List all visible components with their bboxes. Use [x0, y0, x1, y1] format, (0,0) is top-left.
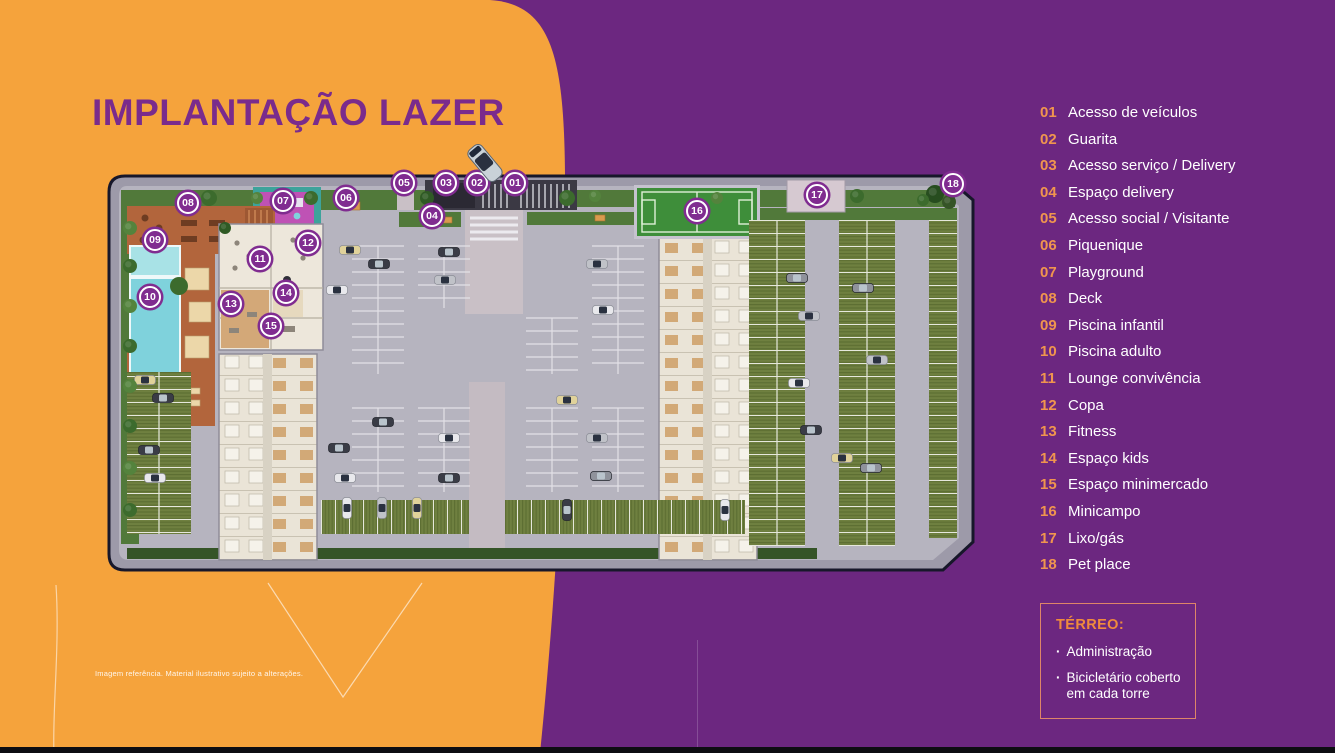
legend-item: 02 Guarita: [1040, 131, 1320, 148]
bottom-edge-bar: [0, 747, 1335, 753]
legend-item-number: 02: [1040, 131, 1061, 148]
plan-marker-09: 09: [144, 229, 166, 251]
legend-item-number: 03: [1040, 157, 1061, 174]
bullet-icon: ·: [1056, 644, 1061, 660]
legend-item-label: Piscina adulto: [1068, 343, 1161, 360]
legend-item: 12 Copa: [1040, 397, 1320, 414]
legend-item-number: 11: [1040, 370, 1061, 387]
legend-item-number: 01: [1040, 104, 1061, 121]
legend-item-label: Copa: [1068, 397, 1104, 414]
plan-marker-11: 11: [249, 248, 271, 270]
terreo-items: · Administração · Bicicletário coberto e…: [1056, 644, 1182, 702]
bullet-icon: ·: [1056, 670, 1061, 702]
legend-item: 05 Acesso social / Visitante: [1040, 210, 1320, 227]
legend-item-label: Fitness: [1068, 423, 1116, 440]
legend-item-number: 06: [1040, 237, 1061, 254]
legend-item-label: Deck: [1068, 290, 1102, 307]
legend-item-number: 07: [1040, 264, 1061, 281]
disclaimer-text: Imagem referência. Material ilustrativo …: [95, 669, 303, 678]
legend-item: 17 Lixo/gás: [1040, 530, 1320, 547]
legend-item-number: 05: [1040, 210, 1061, 227]
legend-item-label: Espaço minimercado: [1068, 476, 1208, 493]
plan-marker-06: 06: [335, 187, 357, 209]
plan-marker-18: 18: [942, 173, 964, 195]
plan-marker-12: 12: [297, 232, 319, 254]
legend-item-label: Acesso social / Visitante: [1068, 210, 1229, 227]
legend-item: 11 Lounge convivência: [1040, 370, 1320, 387]
legend-item: 18 Pet place: [1040, 556, 1320, 573]
legend-item: 10 Piscina adulto: [1040, 343, 1320, 360]
legend-item: 03 Acesso serviço / Delivery: [1040, 157, 1320, 174]
legend-item-number: 04: [1040, 184, 1061, 201]
terreo-box: TÉRREO: · Administração · Bicicletário c…: [1040, 603, 1196, 719]
legend-item-label: Minicampo: [1068, 503, 1141, 520]
plan-marker-07: 07: [272, 190, 294, 212]
legend-item-number: 09: [1040, 317, 1061, 334]
terreo-item-label: Bicicletário coberto em cada torre: [1067, 670, 1183, 702]
plan-marker-10: 10: [139, 286, 161, 308]
legend-item: 13 Fitness: [1040, 423, 1320, 440]
legend-item: 06 Piquenique: [1040, 237, 1320, 254]
legend-item-number: 18: [1040, 556, 1061, 573]
terreo-item: · Administração: [1056, 644, 1182, 660]
legend: 01 Acesso de veículos 02 Guarita 03 Aces…: [1040, 104, 1320, 573]
legend-item-label: Pet place: [1068, 556, 1131, 573]
legend-item-number: 17: [1040, 530, 1061, 547]
legend-item-label: Piquenique: [1068, 237, 1143, 254]
legend-item: 08 Deck: [1040, 290, 1320, 307]
plan-marker-16: 16: [686, 200, 708, 222]
legend-item-label: Playground: [1068, 264, 1144, 281]
legend-item-number: 10: [1040, 343, 1061, 360]
terreo-item: · Bicicletário coberto em cada torre: [1056, 670, 1182, 702]
terreo-item-label: Administração: [1067, 644, 1153, 660]
background-seam: [697, 640, 698, 747]
legend-item-label: Espaço delivery: [1068, 184, 1174, 201]
legend-item: 04 Espaço delivery: [1040, 184, 1320, 201]
plan-marker-04: 04: [421, 205, 443, 227]
legend-item-label: Lixo/gás: [1068, 530, 1124, 547]
legend-item-label: Lounge convivência: [1068, 370, 1201, 387]
legend-item: 14 Espaço kids: [1040, 450, 1320, 467]
legend-item-number: 12: [1040, 397, 1061, 414]
legend-item: 07 Playground: [1040, 264, 1320, 281]
legend-item-label: Acesso serviço / Delivery: [1068, 157, 1236, 174]
terreo-heading: TÉRREO:: [1056, 617, 1182, 633]
page-title: IMPLANTAÇÃO LAZER: [92, 92, 612, 134]
entering-car: [448, 126, 522, 200]
legend-item-label: Acesso de veículos: [1068, 104, 1197, 121]
legend-item-label: Piscina infantil: [1068, 317, 1164, 334]
legend-item: 16 Minicampo: [1040, 503, 1320, 520]
legend-item: 09 Piscina infantil: [1040, 317, 1320, 334]
plan-marker-14: 14: [275, 282, 297, 304]
legend-item-number: 08: [1040, 290, 1061, 307]
legend-item: 01 Acesso de veículos: [1040, 104, 1320, 121]
legend-item-number: 14: [1040, 450, 1061, 467]
page-background: { "title": "IMPLANTAÇÃO LAZER", "legend"…: [0, 0, 1335, 753]
plan-marker-08: 08: [177, 192, 199, 214]
legend-item-label: Espaço kids: [1068, 450, 1149, 467]
plan-marker-05: 05: [393, 172, 415, 194]
plan-markers: 010203040506070809101112131415161718: [97, 168, 983, 580]
site-plan: 010203040506070809101112131415161718: [97, 168, 983, 580]
plan-marker-17: 17: [806, 184, 828, 206]
legend-item-number: 15: [1040, 476, 1061, 493]
legend-item-number: 13: [1040, 423, 1061, 440]
legend-item-label: Guarita: [1068, 131, 1117, 148]
plan-marker-15: 15: [260, 315, 282, 337]
legend-item-number: 16: [1040, 503, 1061, 520]
plan-marker-13: 13: [220, 293, 242, 315]
legend-item: 15 Espaço minimercado: [1040, 476, 1320, 493]
